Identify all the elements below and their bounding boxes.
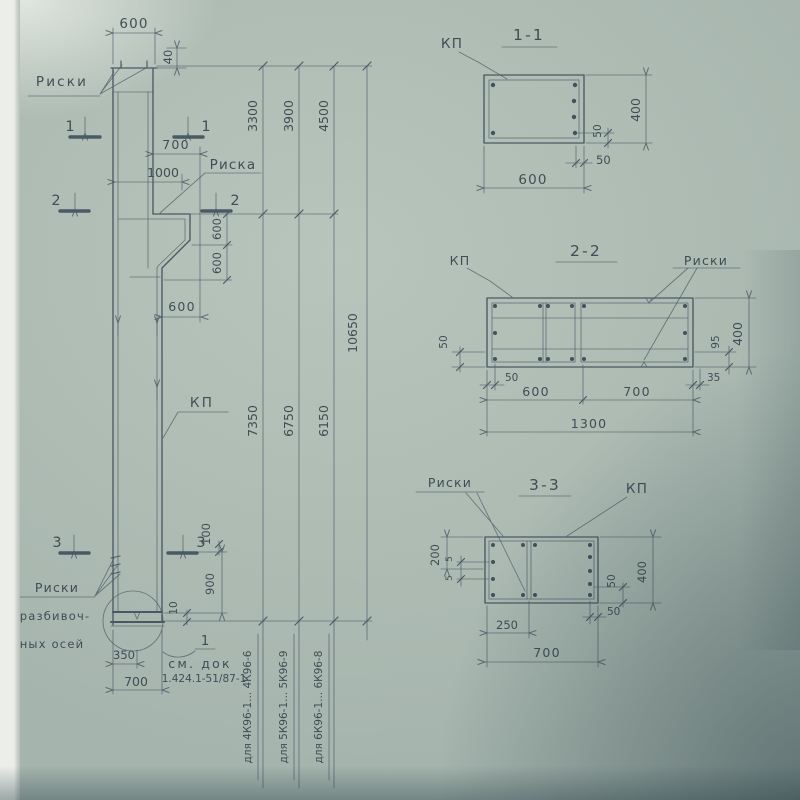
scan-shadow-bottom	[0, 766, 800, 800]
dim-corbel-600b: 600	[210, 252, 224, 274]
elevation-view: 600 40 Риски 1 1 700 1	[20, 16, 261, 694]
dim-700-top: 700	[162, 137, 189, 152]
dim-10: 10	[168, 601, 180, 614]
applicability-note-2: для 5К96-1... 5К96-9	[278, 651, 290, 764]
dim-top-width: 600	[119, 16, 148, 32]
blueprint-sheet: 600 40 Риски 1 1 700 1	[0, 0, 800, 800]
section-1-1-dim-50h: 50	[596, 153, 611, 167]
chain-7350: 7350	[245, 405, 260, 437]
section-2-2-kp-label: КП	[450, 253, 471, 268]
section-mark-2-left: 2	[51, 193, 60, 209]
section-1-1-kp-label: КП	[441, 36, 463, 52]
section-1-1-outline	[484, 75, 584, 143]
dim-900: 900	[203, 573, 217, 595]
chain-6150: 6150	[316, 405, 331, 437]
label-riski-axes-3: ных осей	[20, 637, 85, 651]
dim-bottom-700: 700	[124, 674, 148, 689]
note-see-doc: см. док	[168, 656, 232, 671]
note-doc-number: 1.424.1-51/87-1	[162, 673, 247, 685]
dim-350: 350	[113, 648, 135, 662]
corbel-outline	[153, 214, 190, 622]
applicability-note-3: для 6К96-1... 6К96-8	[313, 651, 325, 764]
dim-1000: 1000	[147, 165, 179, 180]
section-2-2-title: 2-2	[570, 242, 602, 260]
section-1-1-dim-50v: 50	[592, 124, 604, 137]
section-mark-1-left: 1	[65, 119, 74, 135]
section-1-1-title: 1-1	[513, 26, 545, 44]
section-mark-2-right: 2	[230, 193, 239, 209]
section-1-1-dim-width: 600	[518, 172, 547, 188]
label-riski-axes-1: Риски	[35, 580, 79, 595]
section-mark-1: 1 1	[65, 117, 210, 137]
chain-3300: 3300	[245, 100, 260, 132]
chain-total-10650: 10650	[345, 313, 360, 353]
section-mark-3: 3 3	[52, 535, 205, 553]
section-mark-2: 2 2	[51, 193, 239, 211]
scan-shadow-corner	[380, 280, 800, 800]
dim-100: 100	[199, 523, 213, 545]
section-mark-1-right: 1	[201, 119, 210, 135]
section-2-2-riski-label: Риски	[684, 253, 728, 268]
section-mark-3-left: 3	[52, 535, 61, 551]
position-marker-1: 1	[201, 633, 210, 649]
dim-600-shaft: 600	[168, 299, 195, 314]
dim-cap-40: 40	[161, 50, 175, 65]
label-riski-top: Риски	[36, 74, 88, 90]
label-riska-mid: Риска	[210, 157, 257, 173]
dim-corbel-600a: 600	[210, 218, 224, 240]
applicability-note-1: для 4К96-1... 4К96-6	[242, 650, 254, 763]
chain-4500: 4500	[316, 100, 331, 132]
section-1-1-view: 1-1 КП 50 50 600 400	[441, 26, 652, 193]
chain-6750: 6750	[281, 405, 296, 437]
chain-3900: 3900	[281, 100, 296, 132]
label-kp-elevation: КП	[190, 395, 214, 411]
section-1-1-dim-height: 400	[628, 98, 643, 122]
label-riski-axes-2: разбивоч-	[20, 609, 91, 623]
